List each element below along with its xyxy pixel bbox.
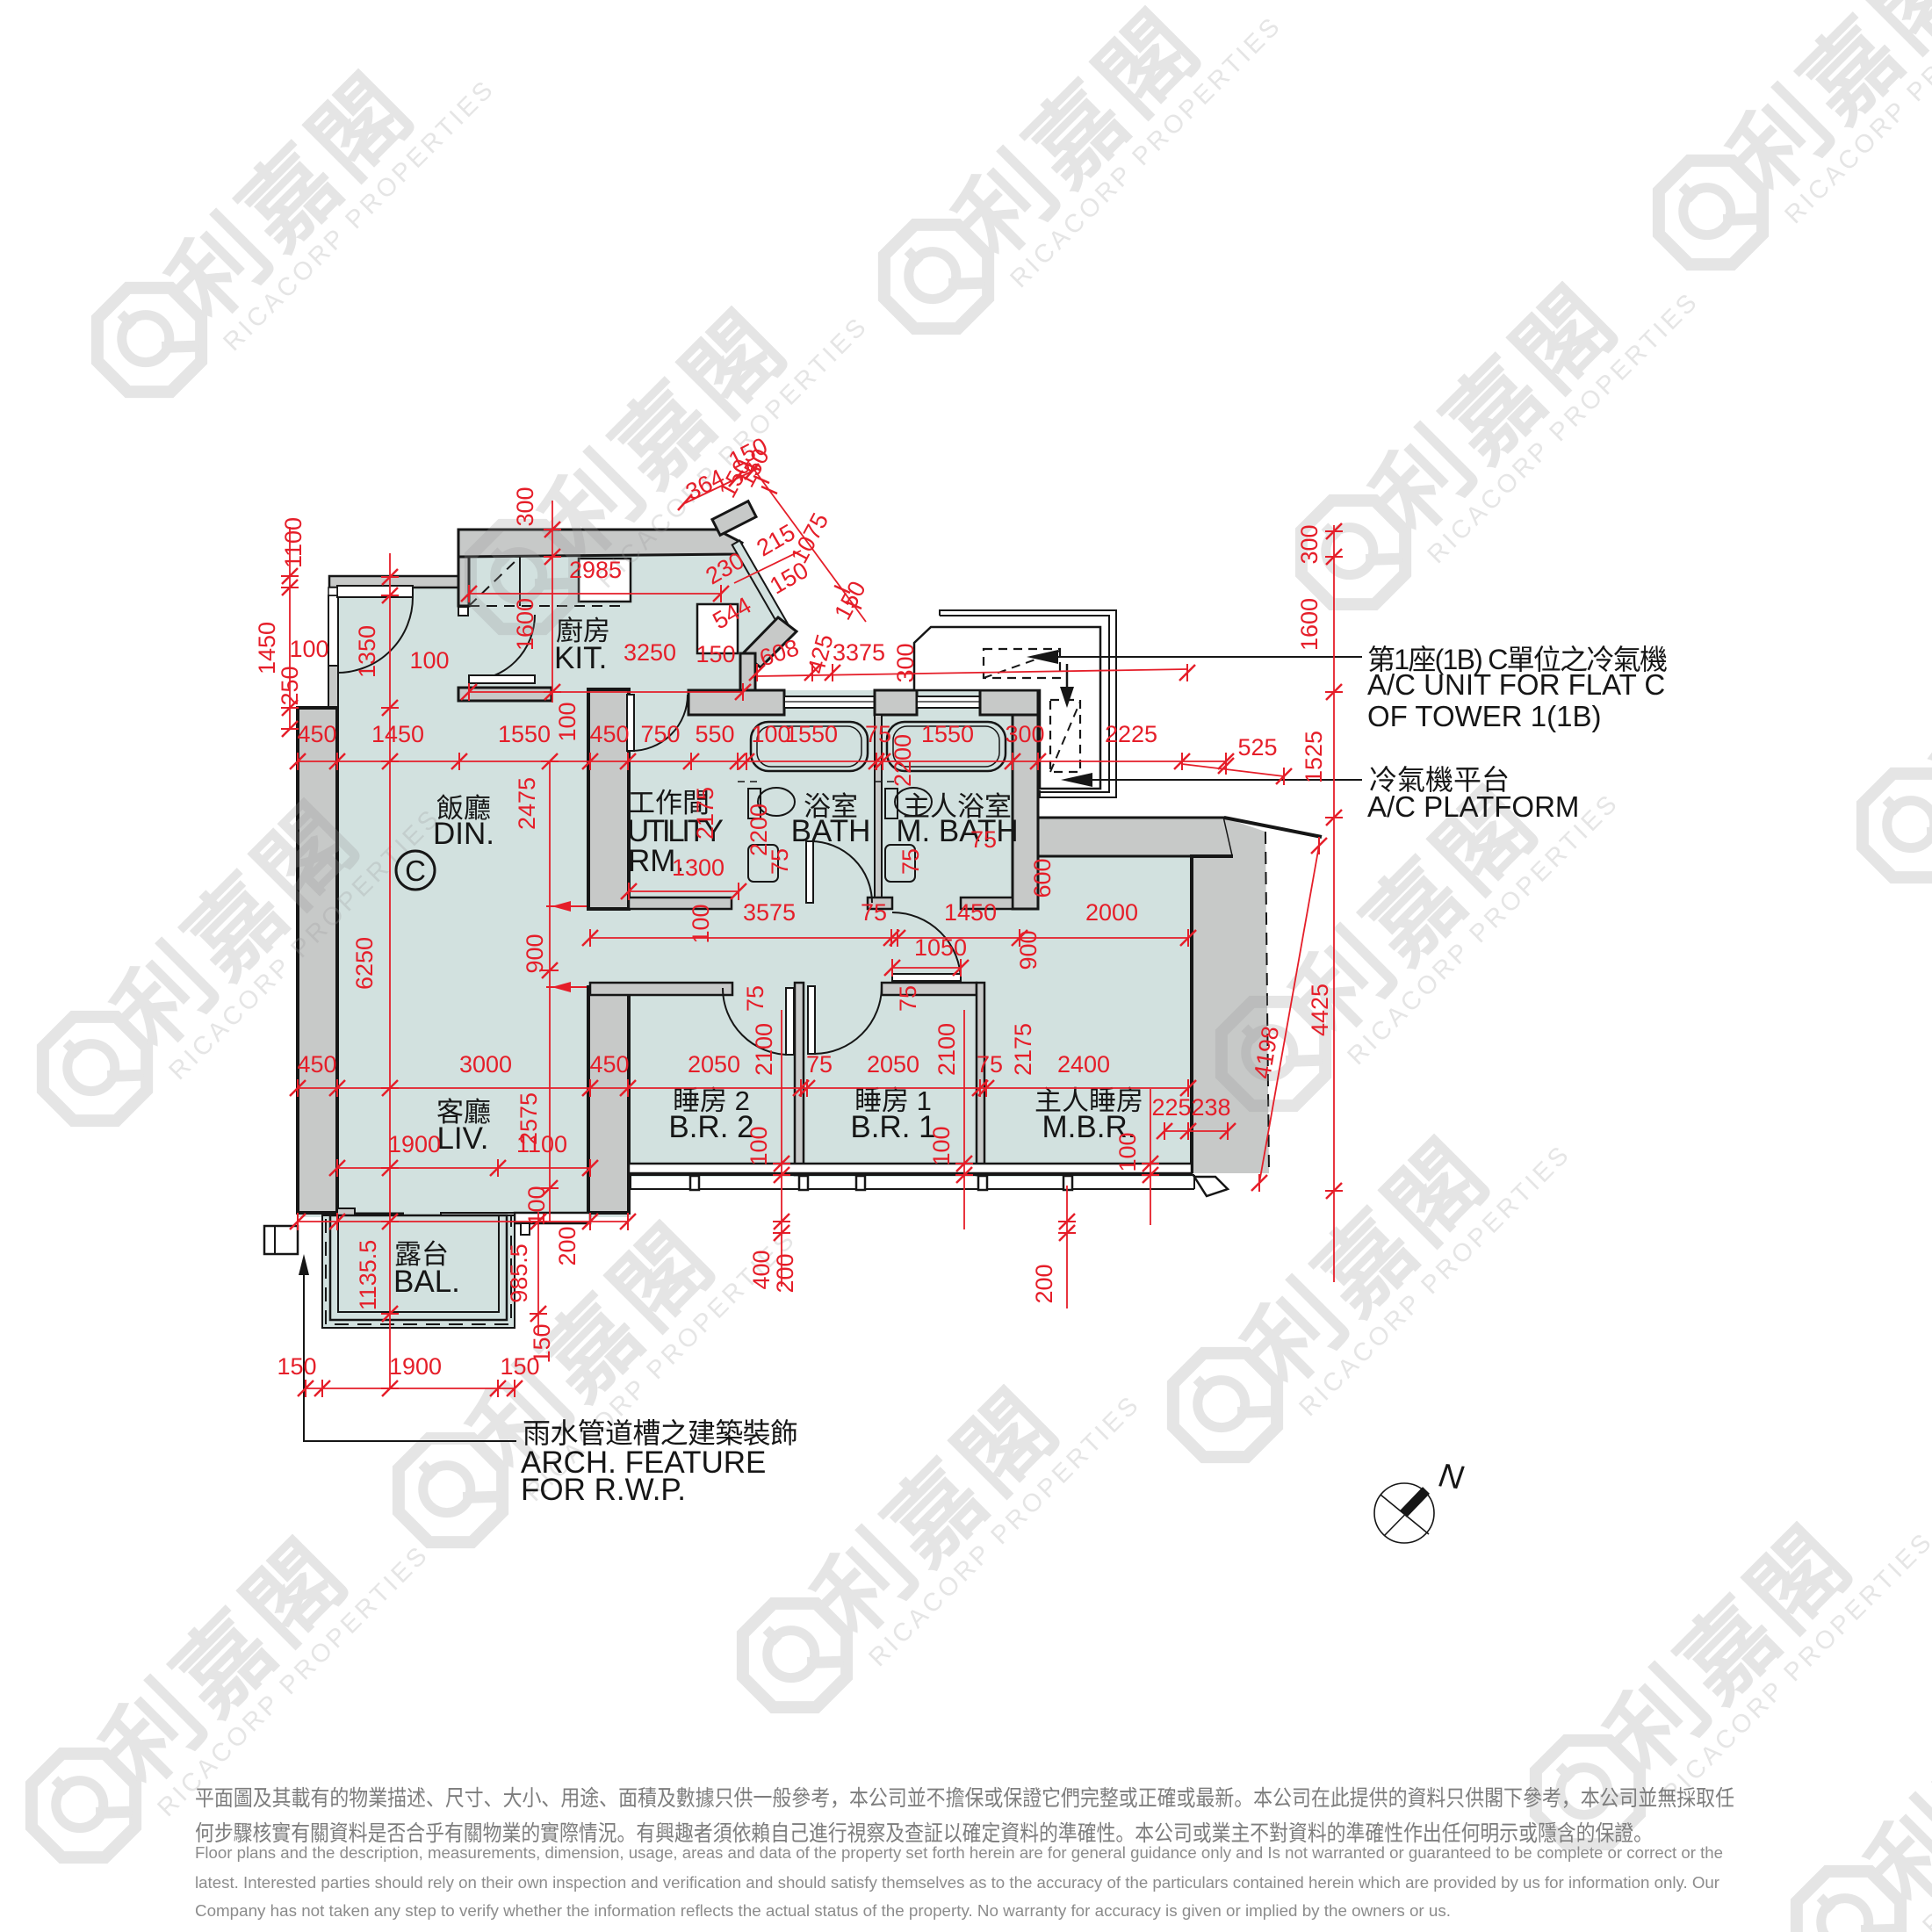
svg-text:FOR R.W.P.: FOR R.W.P. bbox=[521, 1473, 686, 1507]
svg-text:BAL.: BAL. bbox=[393, 1265, 460, 1299]
svg-text:1550: 1550 bbox=[785, 721, 838, 747]
svg-text:1135.5: 1135.5 bbox=[355, 1240, 381, 1311]
svg-text:2050: 2050 bbox=[688, 1051, 740, 1078]
svg-text:Company has not taken any step: Company has not taken any step to verify… bbox=[195, 1901, 1451, 1920]
svg-text:6250: 6250 bbox=[351, 937, 378, 990]
svg-text:450: 450 bbox=[589, 721, 629, 747]
svg-text:1450: 1450 bbox=[371, 721, 424, 747]
svg-text:LIV.: LIV. bbox=[436, 1121, 488, 1156]
svg-text:3000: 3000 bbox=[459, 1051, 512, 1078]
svg-text:450: 450 bbox=[297, 1051, 336, 1078]
svg-text:300: 300 bbox=[892, 643, 919, 682]
svg-text:150: 150 bbox=[277, 1353, 316, 1380]
svg-text:1600: 1600 bbox=[1296, 598, 1323, 651]
svg-text:985.5: 985.5 bbox=[506, 1244, 532, 1303]
svg-text:100: 100 bbox=[928, 1126, 955, 1165]
svg-text:Floor plans and the descriptio: Floor plans and the description, measure… bbox=[195, 1843, 1723, 1862]
svg-text:1900: 1900 bbox=[389, 1353, 442, 1380]
svg-text:75: 75 bbox=[806, 1051, 833, 1078]
svg-text:BATH: BATH bbox=[791, 814, 871, 848]
svg-text:150: 150 bbox=[696, 641, 735, 667]
svg-text:2475: 2475 bbox=[514, 777, 540, 830]
svg-text:450: 450 bbox=[589, 1051, 629, 1078]
svg-text:100: 100 bbox=[746, 1126, 772, 1165]
svg-text:2000: 2000 bbox=[1085, 899, 1138, 926]
svg-text:OF TOWER 1(1B): OF TOWER 1(1B) bbox=[1367, 700, 1601, 732]
svg-text:75: 75 bbox=[767, 848, 793, 875]
svg-text:雨水管道槽之建築裝飾: 雨水管道槽之建築裝飾 bbox=[523, 1417, 798, 1449]
svg-text:75: 75 bbox=[895, 985, 921, 1012]
svg-text:100: 100 bbox=[409, 647, 449, 674]
svg-text:M. BATH: M. BATH bbox=[896, 814, 1018, 848]
svg-text:75: 75 bbox=[898, 848, 924, 875]
svg-text:2400: 2400 bbox=[1057, 1051, 1110, 1078]
svg-text:550: 550 bbox=[695, 721, 734, 747]
svg-text:75: 75 bbox=[865, 721, 891, 747]
svg-text:1550: 1550 bbox=[921, 721, 974, 747]
svg-text:1900: 1900 bbox=[388, 1131, 441, 1157]
svg-text:1300: 1300 bbox=[672, 854, 724, 881]
svg-text:2575: 2575 bbox=[515, 1092, 542, 1145]
svg-text:75: 75 bbox=[742, 985, 768, 1012]
svg-text:2175: 2175 bbox=[692, 787, 718, 840]
svg-text:KIT.: KIT. bbox=[554, 641, 607, 675]
svg-text:4425: 4425 bbox=[1307, 984, 1333, 1036]
svg-text:A/C UNIT FOR FLAT C: A/C UNIT FOR FLAT C bbox=[1367, 668, 1665, 701]
svg-text:600: 600 bbox=[1029, 858, 1056, 898]
svg-text:100: 100 bbox=[289, 636, 328, 662]
svg-text:2175: 2175 bbox=[1010, 1023, 1036, 1076]
svg-text:3250: 3250 bbox=[624, 639, 676, 666]
svg-text:何步驟核實有關資料是否合乎有關物業的實際情況。有興趣者須依賴: 何步驟核實有關資料是否合乎有關物業的實際情況。有興趣者須依賴自己進行視察及查証以… bbox=[195, 1821, 1653, 1846]
svg-text:2100: 2100 bbox=[934, 1023, 960, 1076]
svg-text:200: 200 bbox=[772, 1253, 798, 1293]
svg-text:100: 100 bbox=[688, 904, 714, 943]
svg-text:2050: 2050 bbox=[867, 1051, 919, 1078]
svg-text:525: 525 bbox=[1237, 734, 1277, 761]
svg-text:238: 238 bbox=[1191, 1094, 1230, 1121]
svg-text:900: 900 bbox=[1015, 930, 1042, 970]
svg-text:1525: 1525 bbox=[1301, 731, 1327, 783]
svg-text:100: 100 bbox=[1114, 1132, 1141, 1171]
svg-text:225: 225 bbox=[1151, 1094, 1191, 1121]
svg-text:450: 450 bbox=[297, 721, 336, 747]
svg-text:250: 250 bbox=[277, 666, 303, 705]
svg-text:B.R. 2: B.R. 2 bbox=[668, 1110, 753, 1144]
svg-text:150: 150 bbox=[529, 1323, 555, 1363]
svg-text:1550: 1550 bbox=[498, 721, 551, 747]
svg-text:B.R. 1: B.R. 1 bbox=[850, 1110, 935, 1144]
svg-text:DIN.: DIN. bbox=[433, 817, 494, 851]
svg-text:400: 400 bbox=[748, 1250, 775, 1289]
svg-text:A/C PLATFORM: A/C PLATFORM bbox=[1367, 790, 1579, 823]
svg-text:C: C bbox=[405, 854, 426, 887]
svg-text:100: 100 bbox=[554, 702, 580, 741]
svg-text:75: 75 bbox=[977, 1051, 1003, 1078]
svg-text:200: 200 bbox=[554, 1226, 580, 1265]
svg-text:latest. Interested parties sho: latest. Interested parties should rely o… bbox=[195, 1873, 1719, 1892]
svg-text:300: 300 bbox=[512, 487, 538, 526]
svg-text:750: 750 bbox=[640, 721, 680, 747]
svg-text:2200: 2200 bbox=[890, 734, 916, 787]
svg-text:1050: 1050 bbox=[914, 934, 967, 961]
svg-text:900: 900 bbox=[522, 934, 548, 973]
svg-text:1450: 1450 bbox=[944, 899, 997, 926]
svg-text:平面圖及其載有的物業描述、尺寸、大小、用途、面積及數據只供一: 平面圖及其載有的物業描述、尺寸、大小、用途、面積及數據只供一般參考，本公司並不擔… bbox=[195, 1786, 1734, 1811]
svg-text:2985: 2985 bbox=[569, 557, 622, 583]
svg-text:1100: 1100 bbox=[280, 517, 306, 568]
svg-text:3575: 3575 bbox=[743, 899, 796, 926]
svg-text:2225: 2225 bbox=[1105, 721, 1157, 747]
svg-text:1350: 1350 bbox=[354, 625, 380, 678]
svg-text:3375: 3375 bbox=[833, 639, 885, 666]
svg-text:75: 75 bbox=[861, 899, 887, 926]
svg-text:75: 75 bbox=[970, 826, 997, 853]
svg-text:2100: 2100 bbox=[751, 1023, 777, 1076]
svg-text:200: 200 bbox=[1031, 1264, 1057, 1303]
svg-text:1600: 1600 bbox=[512, 598, 538, 651]
svg-text:300: 300 bbox=[1296, 524, 1323, 564]
svg-text:100: 100 bbox=[523, 1186, 550, 1225]
svg-text:300: 300 bbox=[1005, 721, 1044, 747]
